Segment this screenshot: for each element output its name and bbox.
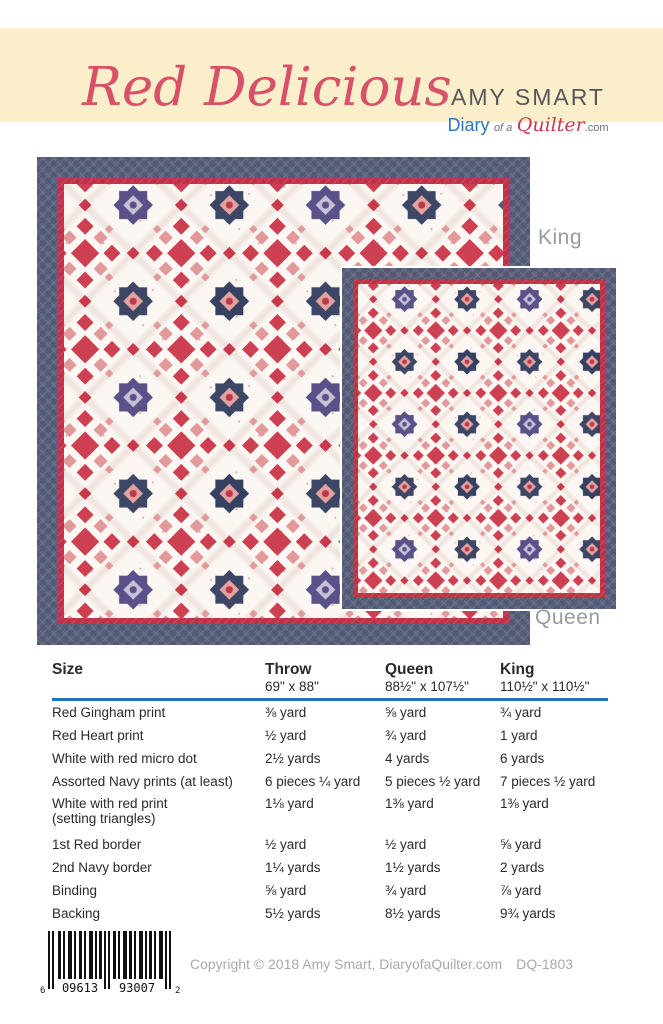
- brand-diary: Diary: [447, 115, 489, 135]
- queen-quilt-image: [340, 266, 617, 611]
- barcode: 6 09613 93007 2: [36, 929, 186, 999]
- table-row: White with red micro dot 2½ yards 4 yard…: [52, 747, 608, 770]
- col-header-throw: Throw 69" x 88": [265, 661, 385, 694]
- table-row: Assorted Navy prints (at least) 6 pieces…: [52, 770, 608, 793]
- table-row: Red Gingham print ⅜ yard ⅝ yard ¾ yard: [52, 701, 608, 724]
- header-band: Red Delicious AMY SMART Diary of a Quilt…: [0, 28, 663, 122]
- king-size-label: King: [538, 226, 582, 250]
- copyright-line: Copyright © 2018 Amy Smart, DiaryofaQuil…: [190, 956, 573, 972]
- quilt-images: [37, 157, 617, 652]
- pattern-code: DQ-1803: [516, 956, 573, 972]
- col-header-queen: Queen 88½" x 107½": [385, 661, 500, 694]
- barcode-digit-lead: 6: [40, 986, 45, 996]
- brand-quilter: Quilter: [517, 114, 585, 136]
- table-row: Binding ⅝ yard ¾ yard ⅞ yard: [52, 879, 608, 902]
- brand-ofa: of a: [494, 122, 512, 134]
- barcode-bars: 6 09613 93007 2: [36, 929, 186, 999]
- col-header-size: Size: [52, 661, 265, 694]
- table-row: White with red print (setting triangles)…: [52, 793, 608, 833]
- quilts-svg: [37, 157, 617, 652]
- copyright-text: Copyright © 2018 Amy Smart, DiaryofaQuil…: [190, 956, 502, 972]
- brand-com: .com: [585, 122, 609, 134]
- barcode-digit-trail: 2: [175, 986, 180, 996]
- table-row: Red Heart print ½ yard ¾ yard 1 yard: [52, 724, 608, 747]
- fabric-requirements-table: Size Throw 69" x 88" Queen 88½" x 107½" …: [52, 661, 608, 925]
- barcode-digits-right: 93007: [119, 981, 155, 995]
- table-row: 2nd Navy border 1¼ yards 1½ yards 2 yard…: [52, 856, 608, 879]
- table-header: Size Throw 69" x 88" Queen 88½" x 107½" …: [52, 661, 608, 701]
- brand-author: AMY SMART: [446, 84, 610, 111]
- brand-site: Diary of a Quilter.com: [446, 114, 610, 136]
- pattern-back-cover: { "header": { "title": "Red Delicious", …: [0, 0, 663, 1024]
- barcode-digits-left: 09613: [62, 981, 98, 995]
- queen-size-label: Queen: [535, 606, 601, 630]
- table-row: Backing 5½ yards 8½ yards 9¾ yards: [52, 902, 608, 925]
- brand-logo: AMY SMART Diary of a Quilter.com: [446, 84, 610, 136]
- table-row: 1st Red border ½ yard ½ yard ⅝ yard: [52, 833, 608, 856]
- pattern-title: Red Delicious: [82, 58, 442, 119]
- col-header-king: King 110½" x 110½": [500, 661, 608, 694]
